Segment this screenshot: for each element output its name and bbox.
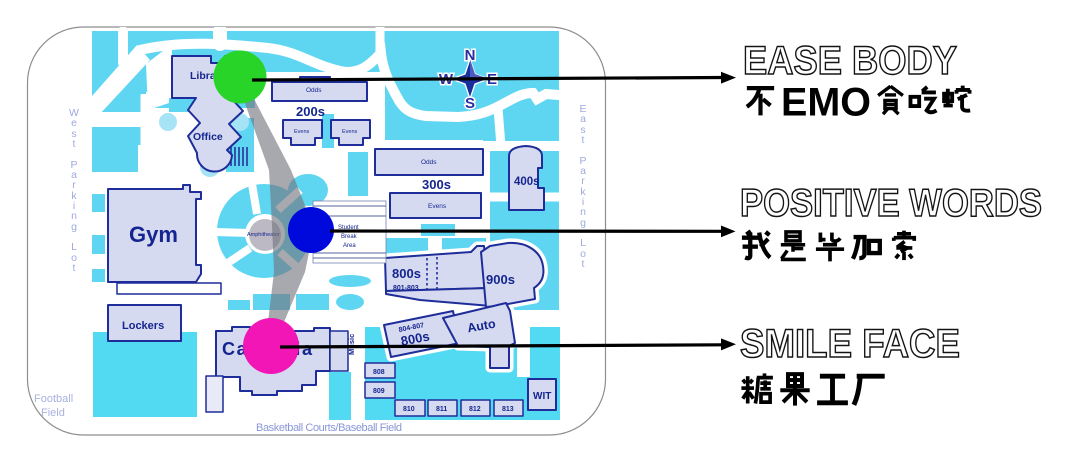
svg-text:t: t [73, 138, 76, 150]
svg-text:EMO: EMO [781, 81, 871, 125]
svg-text:200s: 200s [296, 104, 325, 119]
svg-text:t: t [582, 134, 585, 146]
svg-text:813: 813 [502, 406, 514, 413]
svg-text:Break: Break [341, 234, 358, 240]
svg-text:812: 812 [469, 406, 481, 413]
svg-text:800s: 800s [392, 266, 421, 281]
svg-text:Football: Football [34, 393, 73, 405]
svg-text:Basketball Courts/Baseball Fie: Basketball Courts/Baseball Field [256, 422, 402, 434]
svg-text:Music: Music [347, 334, 356, 355]
svg-text:Area: Area [343, 243, 356, 249]
svg-text:Evens: Evens [342, 129, 358, 135]
svg-text:EASE BODY: EASE BODY [743, 39, 957, 83]
svg-text:g: g [580, 217, 586, 229]
svg-text:811: 811 [436, 406, 447, 413]
svg-text:Odds: Odds [421, 159, 437, 166]
svg-text:300s: 300s [422, 177, 451, 192]
svg-text:S: S [465, 95, 475, 112]
svg-text:g: g [71, 221, 77, 233]
svg-text:810: 810 [403, 406, 415, 413]
svg-text:Odds: Odds [306, 87, 322, 94]
svg-text:808: 808 [373, 369, 385, 376]
svg-text:POSITIVE WORDS: POSITIVE WORDS [740, 182, 1042, 225]
svg-text:400s: 400s [514, 176, 540, 188]
svg-text:Evens: Evens [428, 203, 447, 210]
svg-text:801-803: 801-803 [393, 285, 419, 292]
svg-text:Office: Office [193, 131, 223, 143]
svg-text:900s: 900s [486, 272, 515, 287]
svg-text:Field: Field [41, 407, 65, 419]
svg-text:WIT: WIT [533, 391, 551, 402]
svg-text:Gym: Gym [129, 222, 178, 247]
svg-text:t: t [582, 258, 585, 270]
svg-text:809: 809 [373, 388, 385, 395]
svg-text:N: N [465, 47, 476, 64]
svg-text:SMILE FACE: SMILE FACE [740, 322, 960, 366]
svg-text:Evens: Evens [294, 129, 310, 135]
svg-text:t: t [73, 262, 76, 274]
svg-text:Lockers: Lockers [122, 320, 164, 332]
